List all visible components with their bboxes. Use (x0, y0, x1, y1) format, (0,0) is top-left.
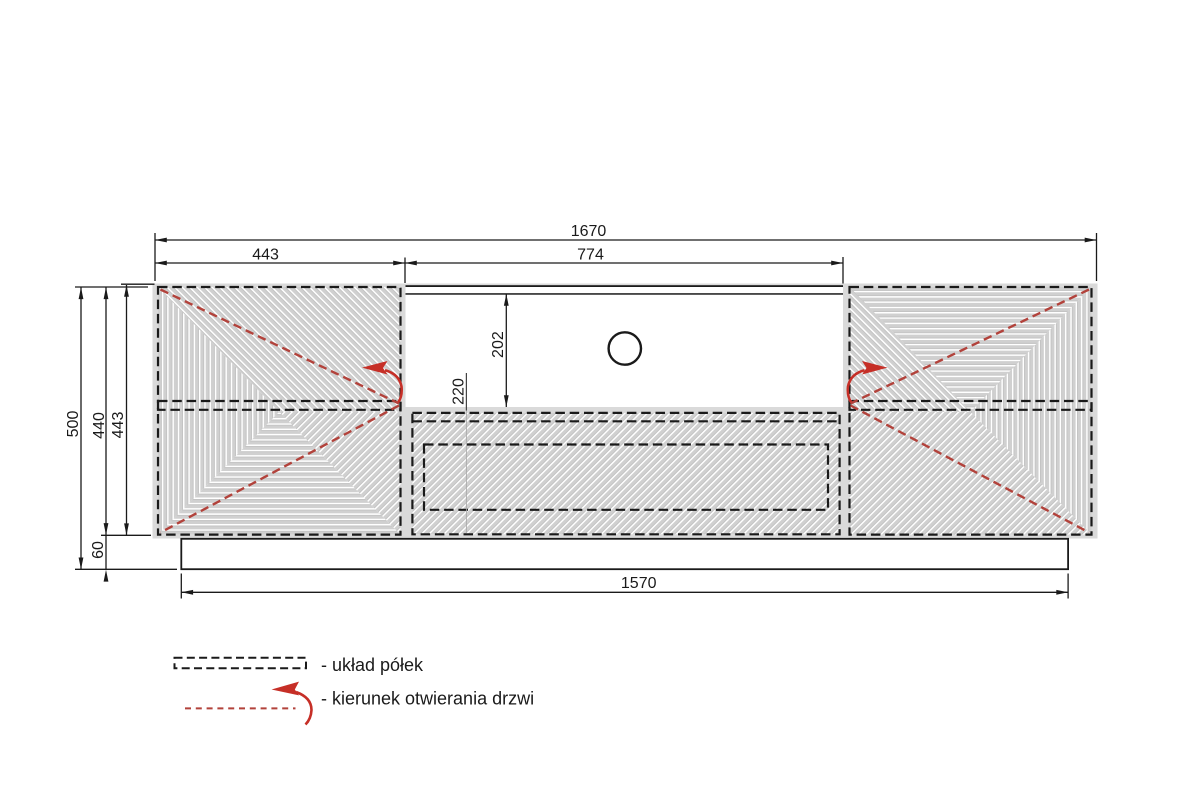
svg-text:443: 443 (252, 246, 279, 263)
svg-text:500: 500 (65, 411, 82, 438)
svg-text:443: 443 (110, 412, 127, 439)
svg-text:1670: 1670 (571, 223, 607, 240)
svg-text:774: 774 (577, 246, 604, 263)
svg-text:1570: 1570 (621, 575, 657, 592)
svg-text:60: 60 (90, 541, 107, 559)
svg-text:202: 202 (490, 331, 507, 358)
svg-text:- kierunek otwierania drzwi: - kierunek otwierania drzwi (321, 689, 534, 709)
svg-text:- układ półek: - układ półek (321, 655, 424, 675)
svg-text:440: 440 (91, 412, 108, 439)
svg-text:220: 220 (451, 378, 468, 405)
